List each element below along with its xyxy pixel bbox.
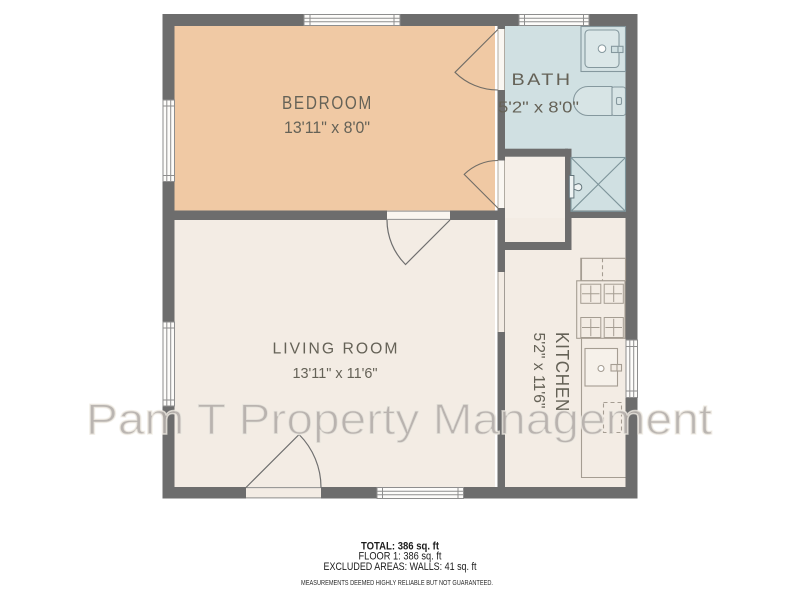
svg-text:LIVING ROOM: LIVING ROOM bbox=[273, 341, 400, 358]
svg-text:5'2" x 8'0": 5'2" x 8'0" bbox=[498, 100, 579, 117]
svg-text:MEASUREMENTS DEEMED HIGHLY REL: MEASUREMENTS DEEMED HIGHLY RELIABLE BUT … bbox=[301, 578, 493, 587]
svg-text:13'11" x 11'6": 13'11" x 11'6" bbox=[293, 365, 378, 382]
svg-text:13'11" x 8'0": 13'11" x 8'0" bbox=[284, 119, 370, 137]
svg-text:BEDROOM: BEDROOM bbox=[282, 93, 373, 113]
svg-text:EXCLUDED AREAS: WALLS: 41 sq.: EXCLUDED AREAS: WALLS: 41 sq. ft bbox=[324, 561, 477, 573]
svg-text:BATH: BATH bbox=[512, 71, 573, 89]
svg-text:Pam T Property Management: Pam T Property Management bbox=[86, 395, 712, 444]
